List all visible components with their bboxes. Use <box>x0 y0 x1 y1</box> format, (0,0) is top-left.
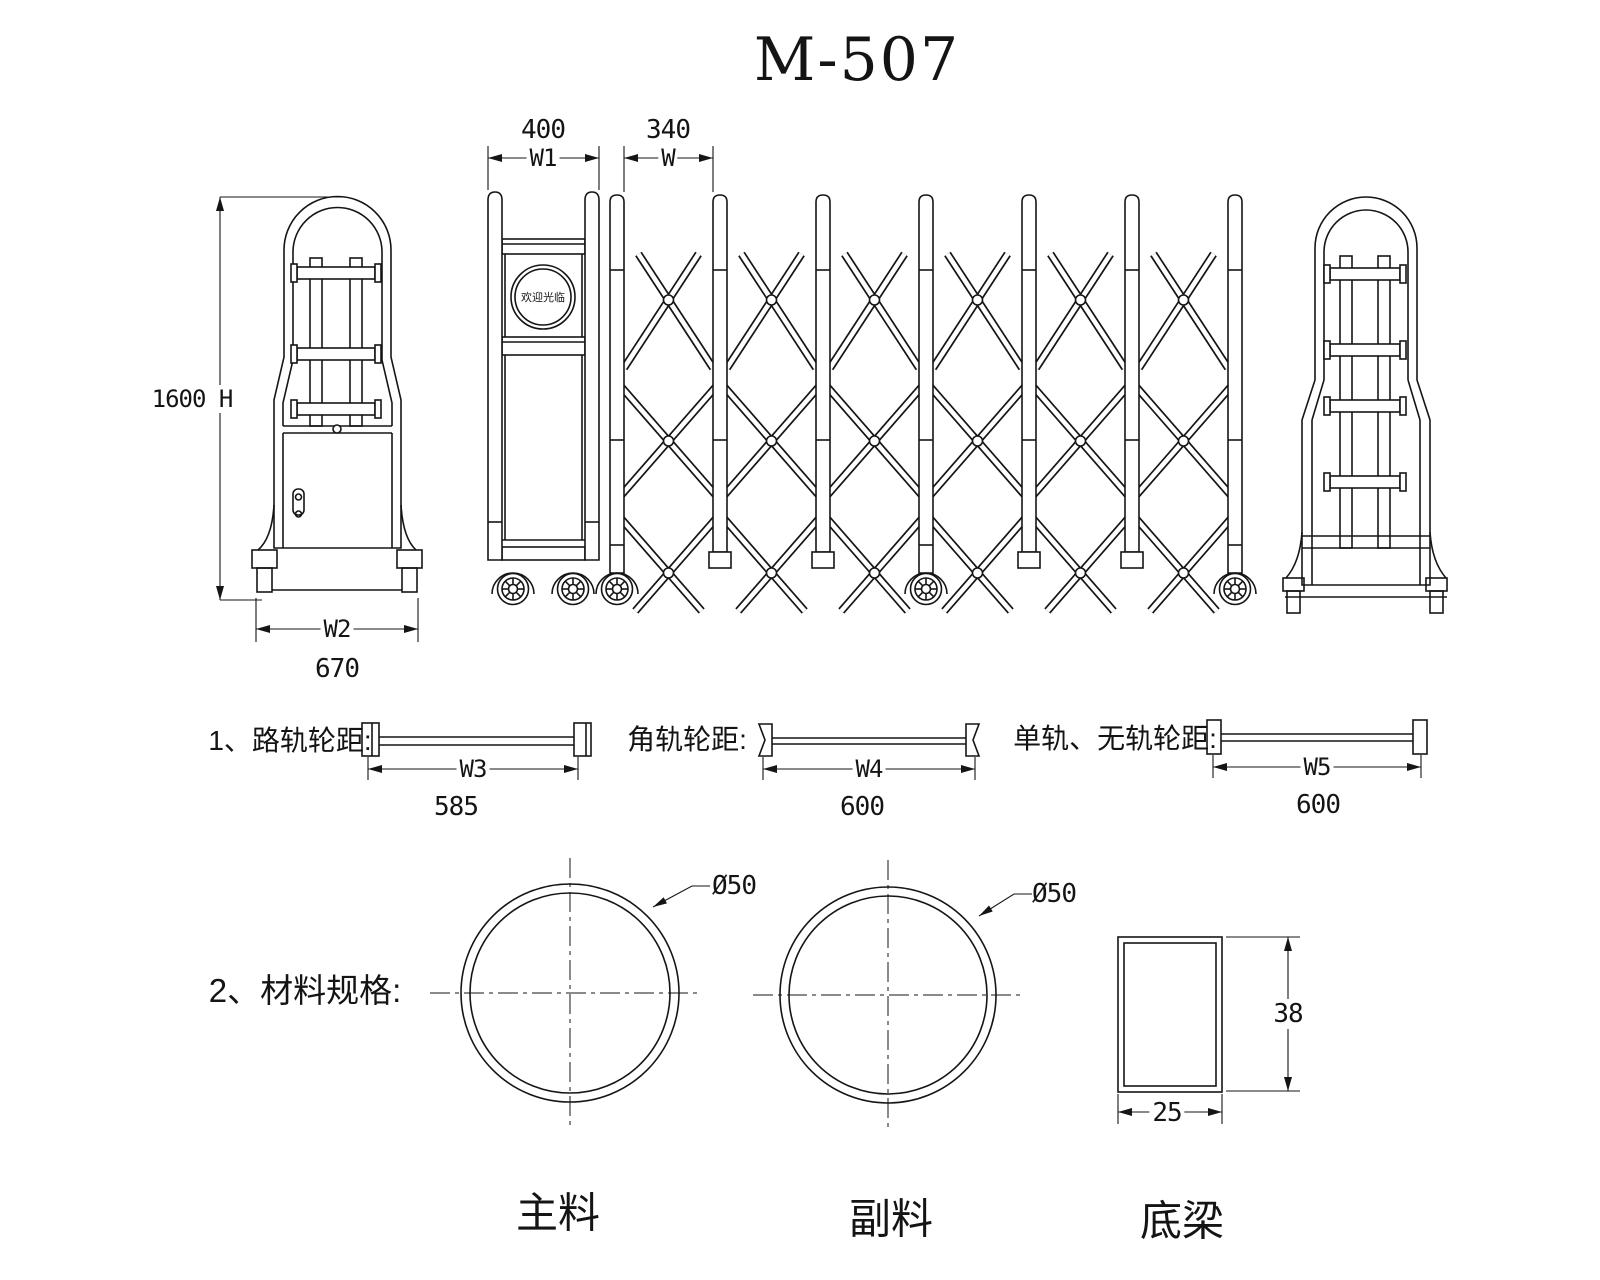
cad-drawing-canvas <box>0 0 1600 1280</box>
dim-bay-width-label: W <box>658 144 677 172</box>
label-angle-rail-track: 角轨轮距: <box>627 718 747 758</box>
label-aux-material: 副料 <box>849 1186 933 1247</box>
dim-height-label: 1600 H <box>149 385 236 413</box>
dia-main-pipe: Ø50 <box>712 871 756 901</box>
dia-aux-pipe: Ø50 <box>1032 879 1076 909</box>
dim-w3-label: W3 <box>457 755 490 783</box>
dim-w4-value: 600 <box>840 792 884 822</box>
view-side-right <box>1283 197 1447 613</box>
label-bottom-beam: 底梁 <box>1140 1188 1224 1249</box>
label-mono-rail-track: 单轨、无轨轮距: <box>1013 717 1217 757</box>
dim-w3-value: 585 <box>434 792 478 822</box>
dim-beam-width: 25 <box>1149 1098 1184 1128</box>
label-main-material: 主料 <box>516 1180 600 1241</box>
view-fence-lattice <box>610 195 1242 611</box>
dim-post-width-value: 400 <box>521 115 565 145</box>
label-road-rail-track: 1、路轨轮距: <box>208 719 371 759</box>
dim-post-width-label: W1 <box>527 144 560 172</box>
drawing-title: M-507 <box>754 25 960 95</box>
dim-w5-value: 600 <box>1296 790 1340 820</box>
view-side-left <box>252 196 422 592</box>
dim-base-width-value: 670 <box>315 654 359 684</box>
section-bottom-beam <box>1118 937 1222 1092</box>
welcome-sign-text: 欢迎光临 <box>521 289 565 305</box>
dim-w4-label: W4 <box>853 755 886 783</box>
section-aux-pipe <box>753 860 1032 1130</box>
dim-base-width-label: W2 <box>321 615 354 643</box>
dim-bay-width-value: 340 <box>646 115 690 145</box>
drawing-sheet: M-507 400 W1 340 W 1600 H W2 670 欢迎光临 1、… <box>0 0 1600 1280</box>
label-material-spec-heading: 2、材料规格: <box>209 964 402 1012</box>
dim-w5-label: W5 <box>1301 753 1334 781</box>
dim-beam-height: 38 <box>1270 999 1305 1029</box>
view-front-post <box>488 192 599 560</box>
section-main-pipe <box>430 858 710 1128</box>
